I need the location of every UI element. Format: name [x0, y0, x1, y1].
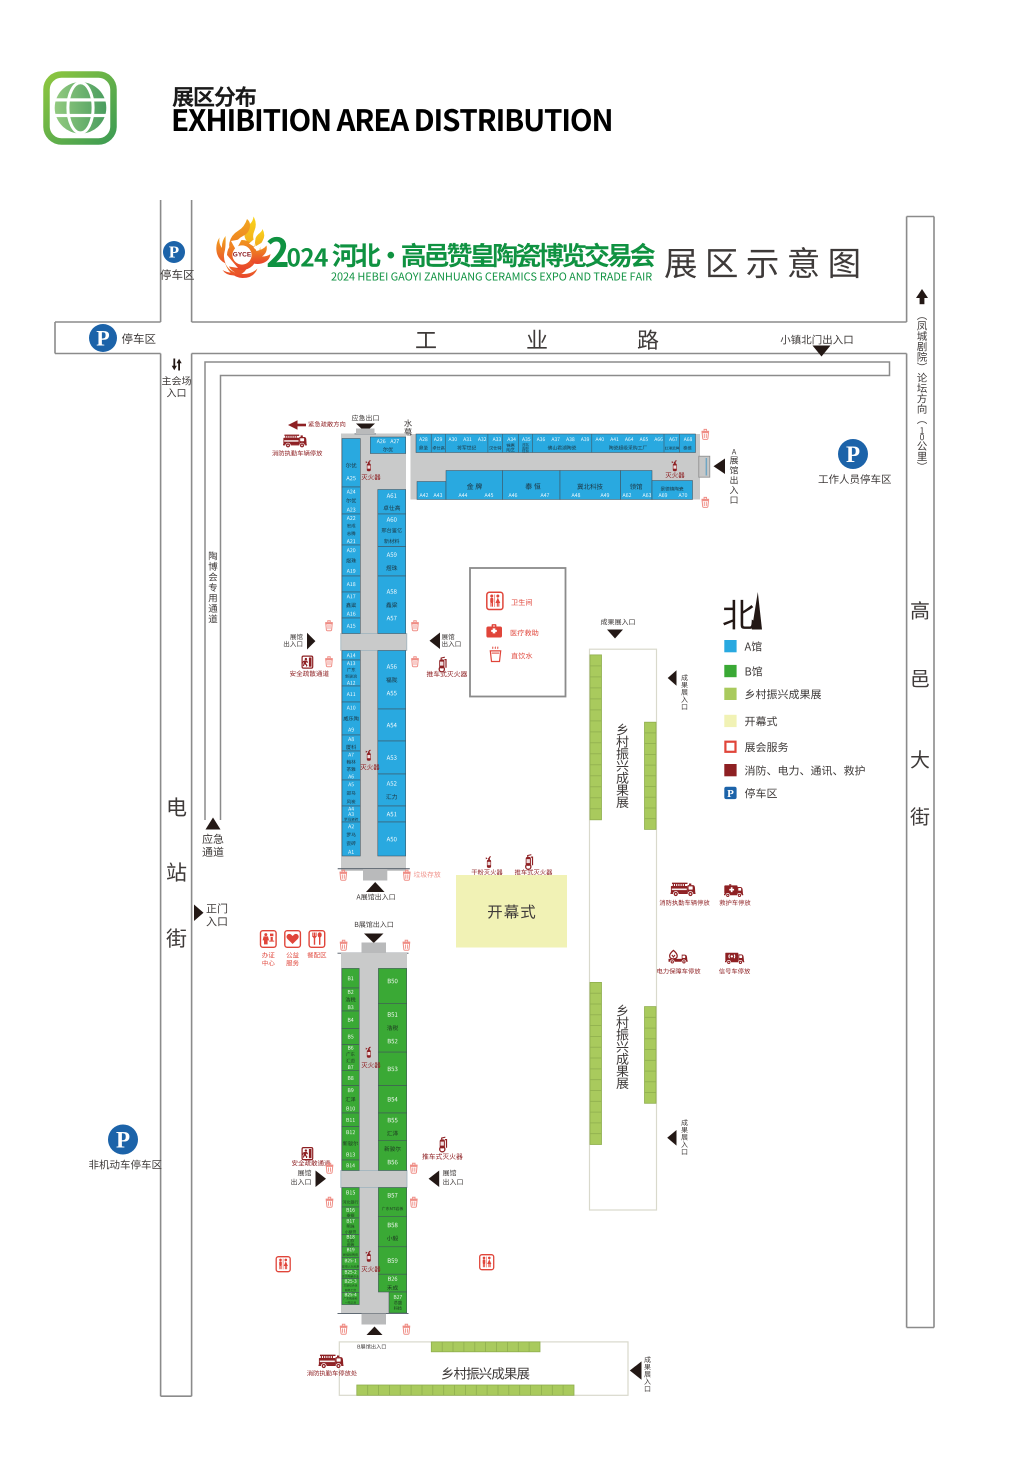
- svg-text:GYCE: GYCE: [233, 252, 252, 259]
- svg-text:P: P: [846, 442, 860, 467]
- svg-text:P: P: [169, 243, 179, 262]
- svg-text:P: P: [727, 788, 734, 800]
- svg-text:P: P: [96, 325, 109, 350]
- svg-text:P: P: [116, 1127, 130, 1152]
